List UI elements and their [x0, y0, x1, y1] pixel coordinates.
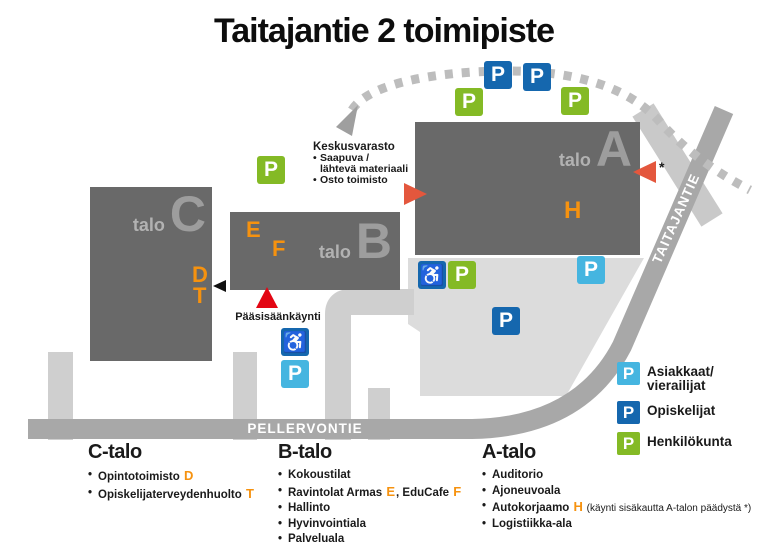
- route-arrowhead-icon: [336, 105, 358, 136]
- page-title: Taitajantie 2 toimipiste: [0, 12, 768, 51]
- list-item: • Hyvinvointiala: [278, 517, 473, 533]
- parking-marker-staff: P: [448, 261, 476, 289]
- list-item: • Autokorjaamo H (käynti sisäkautta A-ta…: [482, 499, 762, 517]
- building-a-label: talo A: [559, 126, 632, 172]
- bullet: •: [482, 517, 492, 533]
- road-label-pellervontie: PELLERVONTIE: [240, 421, 370, 436]
- list-item: • Opiskelijaterveydenhuolto T: [88, 486, 273, 504]
- bullet: •: [88, 468, 98, 486]
- bullet: •: [278, 468, 288, 484]
- section-title: C-talo: [88, 441, 273, 464]
- bullet: •: [482, 484, 492, 500]
- parking-marker-student: P: [492, 307, 520, 335]
- building-prefix: talo: [559, 150, 591, 171]
- parking-marker-student: P: [523, 63, 551, 91]
- bullet: •: [278, 484, 288, 502]
- parking-marker-staff: P: [455, 88, 483, 116]
- building-letter: C: [170, 191, 206, 237]
- legend-label: Opiskelijat: [647, 401, 715, 418]
- keskusvarasto-arrow-icon: [404, 183, 427, 205]
- section-title: B-talo: [278, 441, 473, 464]
- room-letter-t: T: [193, 285, 206, 307]
- list-item: • Logistiikka-ala: [482, 517, 762, 533]
- parking-marker-staff: P: [257, 156, 285, 184]
- site-map: Taitajantie 2 toimipiste talo C talo B t…: [0, 0, 768, 543]
- room-letter-ref: H: [573, 499, 584, 514]
- list-item: • Auditorio: [482, 468, 762, 484]
- room-letter-ref: E: [385, 484, 396, 499]
- parking-marker-visitor: P: [281, 360, 309, 388]
- wheelchair-icon: ♿: [281, 328, 309, 356]
- main-entrance-triangle-icon: [256, 287, 278, 308]
- c-entrance-triangle-icon: [213, 280, 226, 292]
- bullet: •: [313, 175, 320, 186]
- room-letter-f: F: [272, 238, 285, 260]
- parking-marker-staff: P: [561, 87, 589, 115]
- building-prefix: talo: [133, 215, 165, 236]
- parking-marker-student: P: [484, 61, 512, 89]
- list-item: • Ravintolat Armas E, EduCafe F: [278, 484, 473, 502]
- legend-label: Asiakkaat/ vierailijat: [647, 362, 714, 393]
- a-east-entrance-triangle-icon: [633, 161, 656, 183]
- building-letter: B: [356, 218, 392, 264]
- building-b-label: talo B: [319, 218, 392, 264]
- list-item: • Palveluala: [278, 532, 473, 543]
- section-list: • Kokoustilat • Ravintolat Armas E, EduC…: [278, 468, 473, 543]
- asterisk-marker: *: [659, 159, 664, 175]
- building-prefix: talo: [319, 242, 351, 263]
- list-item: • Hallinto: [278, 501, 473, 517]
- legend-item-visitors: P Asiakkaat/ vierailijat: [617, 362, 762, 393]
- bullet: •: [313, 153, 320, 164]
- bullet: •: [88, 486, 98, 504]
- visitor-parking-icon: P: [617, 362, 640, 385]
- building-c-info: C-talo • Opintotoimisto D • Opiskelijate…: [88, 441, 273, 503]
- building-a: talo A: [415, 122, 640, 255]
- student-parking-icon: P: [617, 401, 640, 424]
- room-letter-ref: D: [183, 468, 194, 483]
- section-title: A-talo: [482, 441, 762, 464]
- bullet: •: [482, 499, 492, 517]
- bullet: •: [278, 501, 288, 517]
- main-entrance-label: Pääsisäänkäynti: [233, 311, 323, 323]
- keskusvarasto-note: Keskusvarasto • Saapuva / lähtevä materi…: [313, 141, 423, 186]
- entrance-note: (käynti sisäkautta A-talon päädystä *): [584, 503, 751, 514]
- bullet: •: [278, 517, 288, 533]
- legend-item-students: P Opiskelijat: [617, 401, 762, 424]
- room-letter-ref: F: [452, 484, 462, 499]
- building-a-info: A-talo • Auditorio • Ajoneuvoala • Autok…: [482, 441, 762, 532]
- list-item: • Opintotoimisto D: [88, 468, 273, 486]
- bullet: •: [482, 468, 492, 484]
- list-item: • Kokoustilat: [278, 468, 473, 484]
- keskusvarasto-line: • Osto toimisto: [313, 175, 423, 186]
- section-list: • Opintotoimisto D • Opiskelijaterveyden…: [88, 468, 273, 503]
- room-letter-ref: T: [245, 486, 255, 501]
- section-list: • Auditorio • Ajoneuvoala • Autokorjaamo…: [482, 468, 762, 532]
- parking-marker-visitor: P: [577, 256, 605, 284]
- list-item: • Ajoneuvoala: [482, 484, 762, 500]
- room-letter-h: H: [564, 199, 581, 223]
- room-letter-e: E: [246, 219, 261, 241]
- building-letter: A: [596, 126, 632, 172]
- bullet: •: [278, 532, 288, 543]
- wheelchair-icon: ♿: [418, 261, 446, 289]
- building-b-info: B-talo • Kokoustilat • Ravintolat Armas …: [278, 441, 473, 543]
- building-c-label: talo C: [133, 191, 206, 237]
